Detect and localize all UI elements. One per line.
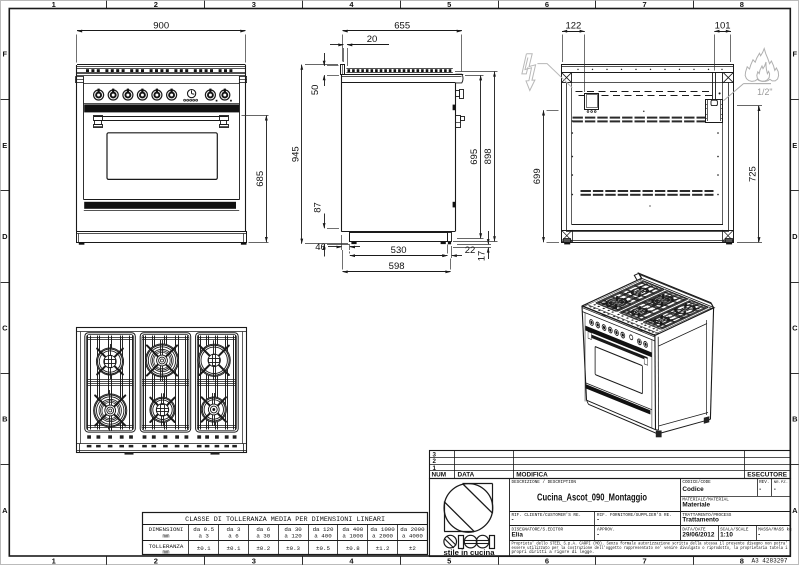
svg-text:898: 898 bbox=[483, 148, 494, 164]
svg-text:685: 685 bbox=[255, 171, 266, 187]
svg-text:E: E bbox=[2, 141, 7, 150]
svg-text:F: F bbox=[3, 50, 8, 59]
svg-text:695: 695 bbox=[469, 149, 480, 165]
svg-text:NR.PZ.: NR.PZ. bbox=[774, 481, 788, 485]
svg-text:Trattamento: Trattamento bbox=[682, 517, 719, 524]
svg-text:50: 50 bbox=[310, 85, 321, 96]
svg-text:3: 3 bbox=[252, 557, 256, 566]
svg-text:-: - bbox=[758, 532, 760, 539]
svg-text:1:10: 1:10 bbox=[720, 532, 733, 539]
svg-text:8: 8 bbox=[740, 557, 744, 566]
svg-text:-: - bbox=[774, 486, 776, 493]
svg-text:Cucina_Ascot_090_Montaggio: Cucina_Ascot_090_Montaggio bbox=[537, 492, 647, 504]
svg-text:Elia: Elia bbox=[512, 532, 524, 539]
svg-text:a 4000: a 4000 bbox=[402, 533, 423, 540]
svg-text:DATA: DATA bbox=[458, 472, 475, 479]
svg-text:a 3: a 3 bbox=[198, 533, 209, 540]
svg-text:±0.2: ±0.2 bbox=[256, 545, 270, 552]
svg-text:945: 945 bbox=[290, 146, 301, 162]
svg-text:22: 22 bbox=[465, 245, 476, 256]
svg-text:900: 900 bbox=[153, 20, 169, 31]
svg-text:-: - bbox=[597, 517, 599, 524]
svg-text:±0.1: ±0.1 bbox=[227, 545, 241, 552]
svg-text:87: 87 bbox=[312, 202, 323, 213]
svg-text:Materiale: Materiale bbox=[682, 501, 710, 508]
svg-text:A3 4283297: A3 4283297 bbox=[751, 558, 787, 565]
svg-text:MODIFICA: MODIFICA bbox=[516, 472, 548, 479]
svg-text:1: 1 bbox=[52, 557, 56, 566]
svg-text:101: 101 bbox=[715, 21, 731, 32]
svg-text:B: B bbox=[2, 415, 8, 424]
svg-text:A: A bbox=[792, 506, 798, 515]
svg-text:3: 3 bbox=[252, 0, 256, 9]
svg-text:propri diritti a rigore di leg: propri diritti a rigore di legge. bbox=[512, 550, 595, 555]
svg-text:F: F bbox=[793, 50, 798, 59]
svg-text:a 30: a 30 bbox=[256, 533, 270, 540]
svg-text:-: - bbox=[759, 486, 761, 493]
svg-text:±0.8: ±0.8 bbox=[346, 545, 360, 552]
svg-text:C: C bbox=[2, 324, 8, 333]
svg-text:a 120: a 120 bbox=[284, 533, 302, 540]
svg-text:C: C bbox=[792, 324, 798, 333]
svg-text:a 1000: a 1000 bbox=[342, 533, 363, 540]
svg-text:17: 17 bbox=[477, 251, 488, 262]
svg-text:±0.1: ±0.1 bbox=[197, 545, 211, 552]
svg-text:598: 598 bbox=[389, 261, 405, 272]
svg-text:1/2": 1/2" bbox=[757, 87, 772, 97]
svg-text:mm: mm bbox=[163, 549, 170, 556]
svg-text:5: 5 bbox=[447, 0, 451, 9]
svg-text:2: 2 bbox=[154, 0, 158, 9]
svg-text:Codice: Codice bbox=[682, 486, 704, 493]
svg-text:2: 2 bbox=[154, 557, 158, 566]
svg-text:±2: ±2 bbox=[409, 545, 416, 552]
svg-text:APPROV.: APPROV. bbox=[597, 528, 615, 533]
svg-text:29/06/2012: 29/06/2012 bbox=[682, 532, 714, 539]
svg-text:699: 699 bbox=[532, 168, 543, 184]
svg-text:ESECUTORE: ESECUTORE bbox=[747, 472, 787, 479]
svg-text:NUM: NUM bbox=[432, 472, 447, 479]
svg-text:46: 46 bbox=[315, 242, 326, 253]
svg-text:RIF. FORNITORE/SUPPLIER'S RE.: RIF. FORNITORE/SUPPLIER'S RE. bbox=[597, 513, 672, 518]
svg-text:mm: mm bbox=[163, 533, 170, 540]
svg-text:A: A bbox=[2, 506, 8, 515]
svg-text:a 400: a 400 bbox=[314, 533, 332, 540]
svg-text:530: 530 bbox=[391, 245, 407, 256]
svg-text:MASSA/MASS kg: MASSA/MASS kg bbox=[758, 528, 792, 533]
svg-text:a 6: a 6 bbox=[228, 533, 239, 540]
svg-text:-: - bbox=[597, 532, 599, 539]
svg-text:20: 20 bbox=[367, 34, 378, 45]
svg-text:E: E bbox=[792, 141, 797, 150]
svg-text:DESCRIZIONE / DESCRIPTION: DESCRIZIONE / DESCRIPTION bbox=[512, 480, 577, 485]
svg-text:CODICE/CODE: CODICE/CODE bbox=[682, 480, 711, 485]
svg-text:-: - bbox=[512, 517, 514, 524]
svg-text:6: 6 bbox=[545, 0, 549, 9]
svg-text:7: 7 bbox=[643, 0, 647, 9]
svg-text:8: 8 bbox=[740, 0, 744, 9]
svg-text:stile in cucina: stile in cucina bbox=[444, 548, 496, 557]
svg-text:D: D bbox=[2, 232, 8, 241]
svg-text:±1.2: ±1.2 bbox=[376, 545, 390, 552]
svg-text:±0.3: ±0.3 bbox=[286, 545, 300, 552]
svg-text:CLASSE DI TOLLERANZA MEDIA PER: CLASSE DI TOLLERANZA MEDIA PER DIMENSION… bbox=[185, 516, 385, 524]
svg-text:1: 1 bbox=[52, 0, 56, 9]
svg-text:RIF. CLIENTE/CUSTOMER'S RE.: RIF. CLIENTE/CUSTOMER'S RE. bbox=[512, 513, 582, 518]
svg-text:5: 5 bbox=[447, 557, 451, 566]
svg-text:D: D bbox=[792, 232, 798, 241]
svg-text:a 2000: a 2000 bbox=[372, 533, 393, 540]
svg-text:Proprieta' dello STEEL S.p.A.: Proprieta' dello STEEL S.p.A. CARPI (MO)… bbox=[512, 542, 788, 547]
svg-text:655: 655 bbox=[394, 20, 410, 31]
svg-text:6: 6 bbox=[545, 557, 549, 566]
svg-text:725: 725 bbox=[748, 166, 759, 182]
svg-text:7: 7 bbox=[643, 557, 647, 566]
svg-text:122: 122 bbox=[565, 21, 581, 32]
svg-text:REV.: REV. bbox=[759, 480, 769, 485]
svg-text:±0.5: ±0.5 bbox=[316, 545, 330, 552]
svg-text:B: B bbox=[792, 415, 798, 424]
